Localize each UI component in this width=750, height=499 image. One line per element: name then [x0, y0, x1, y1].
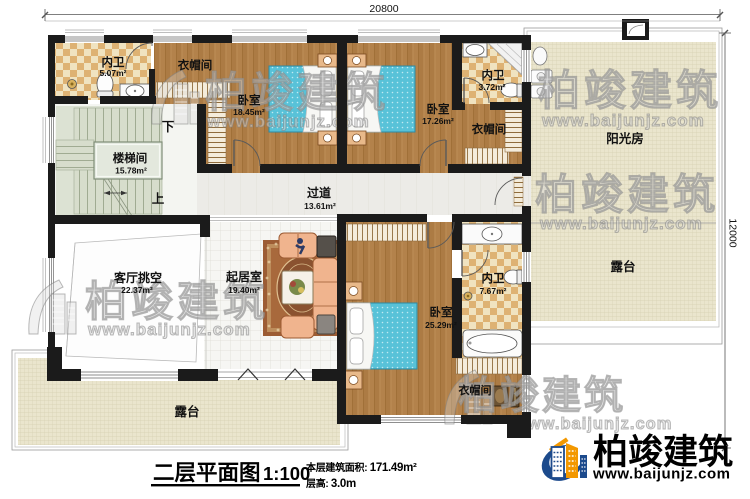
svg-text:17.26m²: 17.26m²	[422, 116, 454, 126]
svg-text:12000: 12000	[727, 218, 739, 247]
svg-text:5.07m²: 5.07m²	[100, 68, 127, 78]
svg-text:www.baijunjz.com: www.baijunjz.com	[592, 466, 730, 483]
svg-text:卧室: 卧室	[238, 93, 261, 107]
svg-text:阳光房: 阳光房	[606, 131, 644, 146]
svg-text:上: 上	[152, 191, 165, 206]
svg-text:25.29m²: 25.29m²	[425, 320, 457, 330]
svg-text:柏竣建筑: 柏竣建筑	[538, 67, 722, 114]
svg-text:本层建筑面积: 171.49m²: 本层建筑面积: 171.49m²	[306, 461, 417, 474]
svg-text:卧室: 卧室	[430, 305, 453, 319]
svg-text:18.45m²: 18.45m²	[233, 107, 265, 117]
svg-text:1:100: 1:100	[263, 463, 310, 484]
svg-text:www.baijunjz.com: www.baijunjz.com	[541, 111, 705, 130]
svg-text:过道: 过道	[307, 185, 331, 200]
svg-text:下: 下	[162, 120, 175, 134]
svg-text:www.baijunjz.com: www.baijunjz.com	[539, 214, 703, 233]
svg-text:柏竣建筑: 柏竣建筑	[535, 171, 719, 218]
svg-text:13.61m²: 13.61m²	[304, 201, 336, 211]
svg-text:www.baijunjz.com: www.baijunjz.com	[513, 415, 672, 433]
svg-text:露台: 露台	[610, 259, 635, 274]
svg-text:www.baijunjz.com: www.baijunjz.com	[87, 320, 251, 339]
svg-text:卧室: 卧室	[427, 102, 450, 116]
svg-text:7.67m²: 7.67m²	[480, 286, 507, 296]
svg-text:22.37m²: 22.37m²	[121, 285, 153, 295]
svg-text:层高: 3.0m: 层高: 3.0m	[306, 477, 356, 490]
svg-text:3.72m²: 3.72m²	[479, 82, 506, 92]
svg-text:内卫: 内卫	[102, 55, 125, 69]
svg-text:露台: 露台	[174, 404, 199, 419]
svg-text:19.40m²: 19.40m²	[228, 285, 260, 295]
svg-text:起居室: 起居室	[225, 269, 262, 284]
svg-text:楼梯间: 楼梯间	[113, 151, 148, 165]
svg-text:衣帽间: 衣帽间	[459, 383, 492, 397]
svg-text:15.78m²: 15.78m²	[115, 166, 147, 176]
svg-text:客厅挑空: 客厅挑空	[113, 270, 162, 285]
svg-text:衣帽间: 衣帽间	[472, 122, 507, 136]
svg-text:二层平面图: 二层平面图	[153, 461, 261, 485]
svg-text:内卫: 内卫	[482, 271, 505, 285]
svg-text:20800: 20800	[369, 3, 398, 15]
svg-text:内卫: 内卫	[482, 68, 505, 82]
svg-text:衣帽间: 衣帽间	[178, 58, 213, 72]
